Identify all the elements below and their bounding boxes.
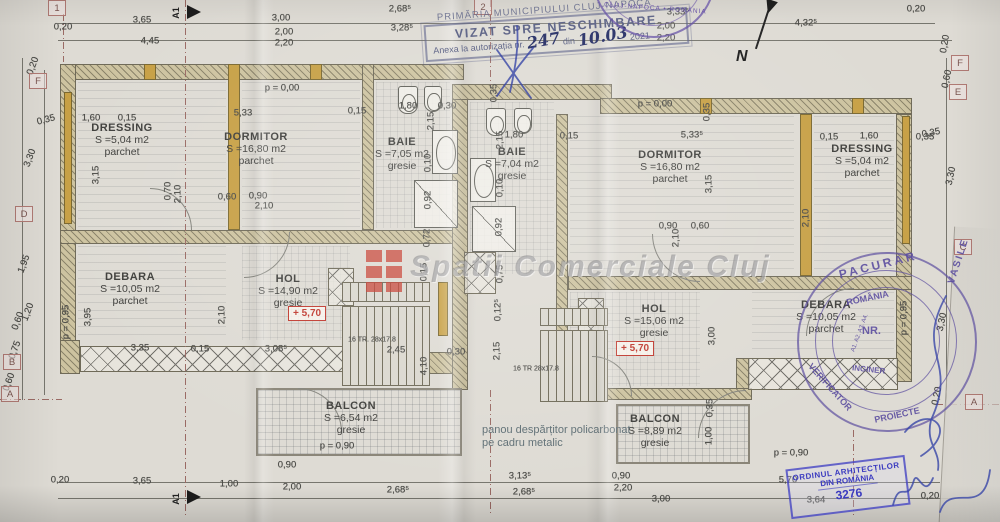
dimension-label: 3,33⁵ — [667, 7, 689, 18]
dimension-label: 2,20 — [614, 483, 633, 494]
dimension-label: 0,35 — [702, 103, 713, 122]
dimension-label: 2,15 — [426, 112, 437, 131]
section-label-bottom: A1 — [171, 493, 181, 505]
dimension-label: 0,90 — [278, 460, 297, 471]
dimension-label: 3,30 — [22, 147, 39, 168]
dimension-label: 5,33⁵ — [681, 130, 703, 141]
dimension-label: 2,00 — [275, 27, 294, 38]
dimension-label: 1,95 — [16, 253, 33, 274]
dimension-label: 0,15 — [191, 344, 210, 355]
dimension-label: 1,60 — [860, 131, 879, 142]
dimension-label: 3,64 — [807, 495, 826, 506]
dimension-label: 2,10 — [801, 209, 812, 228]
dimension-label: 3,00 — [652, 494, 671, 505]
axis-marker: F — [951, 55, 969, 71]
dimension-label: 3,35 — [131, 343, 150, 354]
dimension-label: 1,60 — [82, 113, 101, 124]
dimension-label: 0,60 — [10, 310, 27, 331]
dimension-label: 3,13⁵ — [509, 471, 531, 482]
dimension-label: 0,20 — [51, 475, 70, 486]
dimension-label: 0,35 — [916, 132, 935, 143]
dimension-label: 1,80 — [399, 101, 418, 112]
dimension-label: 0,20 — [907, 4, 926, 15]
stair-label: 16 TR 28x17.8 — [513, 366, 559, 373]
dimension-label: 3,15 — [704, 175, 715, 194]
dimension-label: 2,15 — [492, 342, 503, 361]
dimension-label: 3,95 — [83, 308, 94, 327]
dimension-label: 3,30 — [944, 166, 959, 186]
dimension-label: 0,92 — [494, 218, 505, 237]
dimension-label: 3,65 — [133, 15, 152, 26]
dimension-label: 5,33 — [234, 108, 253, 119]
dimension-label: 5,70 — [779, 475, 798, 486]
axis-marker: D — [15, 206, 33, 222]
dimension-label: 0,35 — [489, 84, 500, 103]
dimension-label: 0,92 — [423, 191, 434, 210]
axis-marker: A — [1, 386, 19, 402]
dimensions-layer: 0,203,654,453,002,002,202,68⁵3,28⁵3,33⁵2… — [0, 0, 1000, 522]
dimension-label: 0,30 — [447, 347, 466, 358]
dimension-label: 0,10 — [423, 154, 434, 173]
dimension-label: 3,30 — [935, 312, 950, 332]
dimension-label: 3,00 — [707, 327, 718, 346]
dimension-label: 0,20 — [921, 491, 940, 502]
axis-marker: 2 — [474, 0, 492, 15]
dimension-label: 2,10 — [173, 185, 184, 204]
dimension-label: 2,45 — [387, 345, 406, 356]
dimension-label: 0,12⁵ — [493, 299, 504, 321]
dimension-label: p = 0,90 — [320, 441, 355, 452]
dimension-label: 3,08⁵ — [265, 344, 287, 355]
dimension-label: 2,00 — [657, 21, 676, 32]
dimension-label: 0,10 — [495, 179, 506, 198]
dimension-label: 0,15 — [348, 106, 367, 117]
dimension-label: 0,60 — [691, 221, 710, 232]
dimension-label: 2,10 — [255, 201, 274, 212]
floor-plan-scan: DRESSINGS =5,04 m2parchet DORMITORS =16,… — [0, 0, 1000, 522]
dimension-label: 3,65 — [133, 476, 152, 487]
dimension-label: p = 0,00 — [265, 83, 300, 94]
dimension-label: 3,00 — [272, 13, 291, 24]
dimension-label: 2,20 — [657, 33, 676, 44]
dimension-label: 2,68⁵ — [389, 4, 411, 15]
stair-label: 16 TR. 28x17.8 — [348, 337, 396, 344]
dimension-label: 0,60 — [218, 192, 237, 203]
dimension-label: 2,20 — [275, 38, 294, 49]
dimension-label: 4,45 — [141, 36, 160, 47]
dimension-label: 1,80 — [505, 130, 524, 141]
dimension-label: 2,00 — [283, 482, 302, 493]
dimension-label: 0,15 — [560, 131, 579, 142]
dimension-label: 2,10 — [671, 229, 682, 248]
axis-marker: A — [965, 394, 983, 410]
dimension-label: 2,10 — [217, 306, 228, 325]
dimension-label: 0,90 — [612, 471, 631, 482]
dimension-label: p = 0,90 — [774, 448, 809, 459]
dimension-label: 0,20 — [54, 22, 73, 33]
dimension-label: 0,35 — [705, 399, 716, 418]
dimension-label: 0,15 — [118, 113, 137, 124]
dimension-label: 3,15 — [91, 166, 102, 185]
dimension-label: 1,00 — [704, 427, 715, 446]
dimension-label: p = 0,95 — [61, 305, 72, 340]
north-label: N — [736, 48, 748, 66]
dimension-label: 0,72 — [422, 229, 433, 248]
dimension-label: 0,30 — [438, 101, 457, 112]
dimension-label: 0,15 — [820, 132, 839, 143]
dimension-label: 0,75 — [495, 265, 506, 284]
dimension-label: 0,35 — [36, 112, 57, 127]
dimension-label: p = 0,95 — [899, 301, 910, 336]
dimension-label: 3,28⁵ — [391, 23, 413, 34]
axis-marker: F — [29, 73, 47, 89]
axis-marker: 1 — [48, 0, 66, 16]
dimension-label: 2,68⁵ — [387, 485, 409, 496]
section-label-top: A1 — [171, 7, 181, 19]
axis-marker: E — [949, 84, 967, 100]
section-flag-top — [187, 5, 201, 19]
dimension-label: 2,68⁵ — [513, 487, 535, 498]
dimension-label: 4,32⁵ — [795, 18, 817, 29]
section-flag-bottom — [187, 490, 201, 504]
dimension-label: p = 0,00 — [638, 99, 673, 110]
dimension-label: 1,00 — [220, 479, 239, 490]
dimension-label: 0,20 — [930, 386, 945, 406]
axis-marker: C — [954, 239, 972, 255]
dimension-label: 4,10 — [419, 357, 430, 376]
dimension-label: 0,15 — [419, 263, 430, 282]
dimension-label: 0,20 — [938, 34, 952, 54]
axis-marker: B — [3, 354, 21, 370]
